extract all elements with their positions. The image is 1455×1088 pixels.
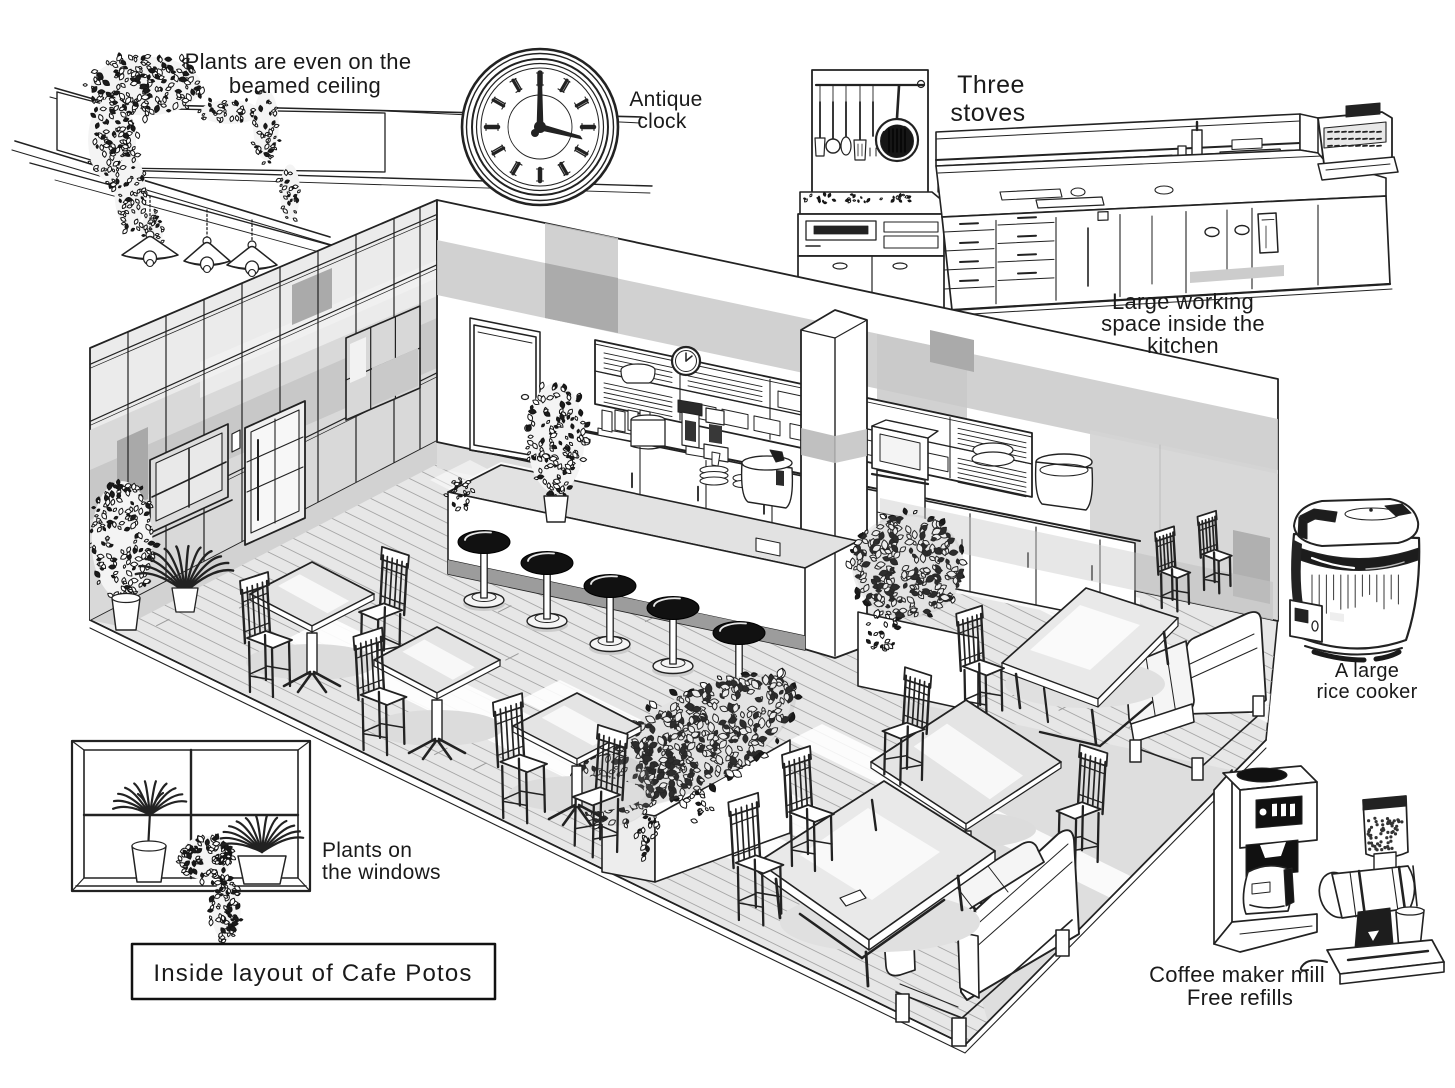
- svg-text:Three: Three: [957, 71, 1025, 99]
- svg-text:Free refills: Free refills: [1187, 985, 1293, 1010]
- svg-text:clock: clock: [637, 110, 687, 133]
- svg-text:Coffee maker mill: Coffee maker mill: [1149, 962, 1325, 987]
- svg-text:the windows: the windows: [322, 861, 441, 884]
- svg-text:Plants on: Plants on: [322, 839, 412, 862]
- svg-text:Antique: Antique: [629, 88, 702, 111]
- svg-text:A large: A large: [1335, 660, 1399, 682]
- svg-text:Inside layout of Cafe Potos: Inside layout of Cafe Potos: [153, 960, 472, 987]
- svg-text:rice cooker: rice cooker: [1316, 681, 1417, 703]
- svg-text:kitchen: kitchen: [1147, 333, 1219, 358]
- svg-text:Plants are even on the: Plants are even on the: [185, 49, 412, 74]
- svg-text:stoves: stoves: [950, 99, 1025, 127]
- svg-text:beamed ceiling: beamed ceiling: [229, 73, 381, 98]
